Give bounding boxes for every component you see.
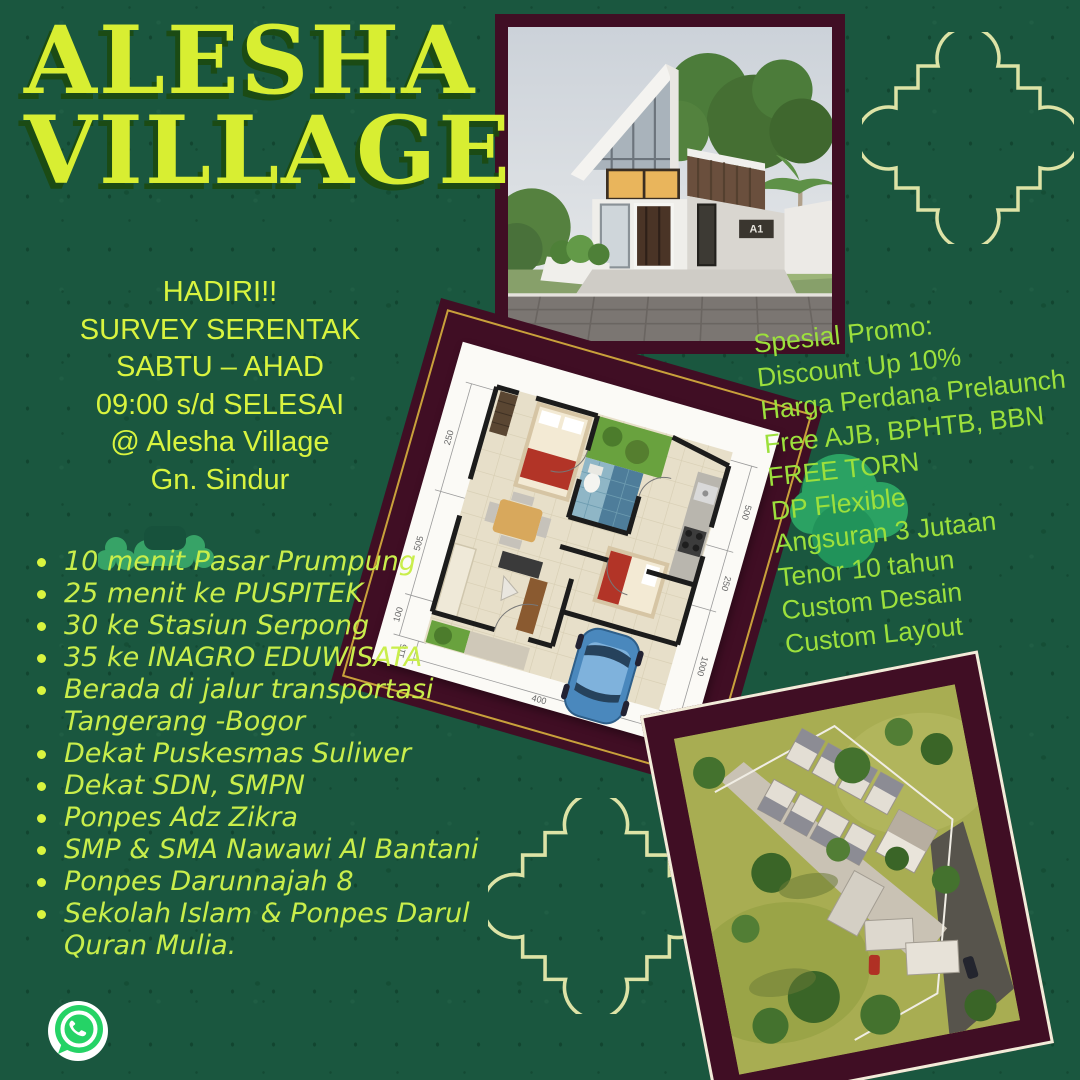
- poster-title-line1: ALESHA: [24, 16, 512, 106]
- location-text: Berada di jalur transportasi Tangerang -…: [64, 674, 433, 737]
- aerial-photo-frame: [640, 650, 1054, 1080]
- dim-label: 500: [740, 504, 754, 521]
- dim-label: 400: [531, 693, 548, 707]
- location-item: Berada di jalur transportasi Tangerang -…: [34, 674, 506, 738]
- poster-canvas: A1: [0, 0, 1080, 1080]
- house-render-illustration: A1: [508, 27, 832, 341]
- locations-block: 10 menit Pasar Prumpung 25 menit ke PUSP…: [34, 546, 506, 962]
- location-item: Dekat Puskesmas Suliwer: [34, 738, 506, 770]
- event-line: HADIRI!!: [28, 274, 412, 312]
- aerial-render-illustration: [674, 684, 1020, 1074]
- dim-label: 250: [442, 429, 456, 446]
- whatsapp-icon: [46, 999, 110, 1063]
- event-line: 09:00 s/d SELESAI: [28, 387, 412, 425]
- location-text: 10 menit Pasar Prumpung: [64, 546, 416, 577]
- red-car: [869, 955, 880, 975]
- location-item: Dekat SDN, SMPN: [34, 770, 506, 802]
- location-item: 10 menit Pasar Prumpung: [34, 546, 506, 578]
- event-line: @ Alesha Village: [28, 424, 412, 462]
- location-text: Dekat SDN, SMPN: [64, 770, 305, 801]
- event-line: SURVEY SERENTAK: [28, 312, 412, 350]
- location-text: Dekat Puskesmas Suliwer: [64, 738, 411, 769]
- location-item: Ponpes Darunnajah 8: [34, 866, 506, 898]
- quatrefoil-ornament-top-right: [862, 32, 1074, 244]
- location-item: 25 menit ke PUSPITEK: [34, 578, 506, 610]
- boundary-wall: [784, 200, 832, 274]
- location-item: 30 ke Stasiun Serpong: [34, 610, 506, 642]
- location-text: Ponpes Darunnajah 8: [64, 866, 354, 897]
- dim-label: 250: [719, 575, 733, 592]
- promo-block: Spesial Promo: Discount Up 10% Harga Per…: [752, 296, 1080, 661]
- location-text: Sekolah Islam & Ponpes Darul Quran Mulia…: [64, 898, 470, 961]
- location-item: 35 ke INAGRO EDUWISATA: [34, 642, 506, 674]
- house-unit-label: A1: [750, 224, 764, 236]
- location-text: 35 ke INAGRO EDUWISATA: [64, 642, 422, 673]
- location-item: Sekolah Islam & Ponpes Darul Quran Mulia…: [34, 898, 506, 962]
- event-block: HADIRI!! SURVEY SERENTAK SABTU – AHAD 09…: [28, 274, 412, 499]
- location-item: Ponpes Adz Zikra: [34, 802, 506, 834]
- poster-title: ALESHA VILLAGE: [24, 16, 512, 196]
- location-text: 25 menit ke PUSPITEK: [64, 578, 363, 609]
- event-line: SABTU – AHAD: [28, 349, 412, 387]
- poster-title-line2: VILLAGE: [24, 106, 512, 196]
- whatsapp-button[interactable]: [46, 999, 110, 1063]
- location-text: SMP & SMA Nawawi Al Bantani: [64, 834, 478, 865]
- location-item: SMP & SMA Nawawi Al Bantani: [34, 834, 506, 866]
- event-line: Gn. Sindur: [28, 462, 412, 500]
- house-photo-frame: A1: [495, 14, 845, 354]
- dim-label: 1000: [695, 655, 710, 677]
- location-text: 30 ke Stasiun Serpong: [64, 610, 369, 641]
- location-text: Ponpes Adz Zikra: [64, 802, 298, 833]
